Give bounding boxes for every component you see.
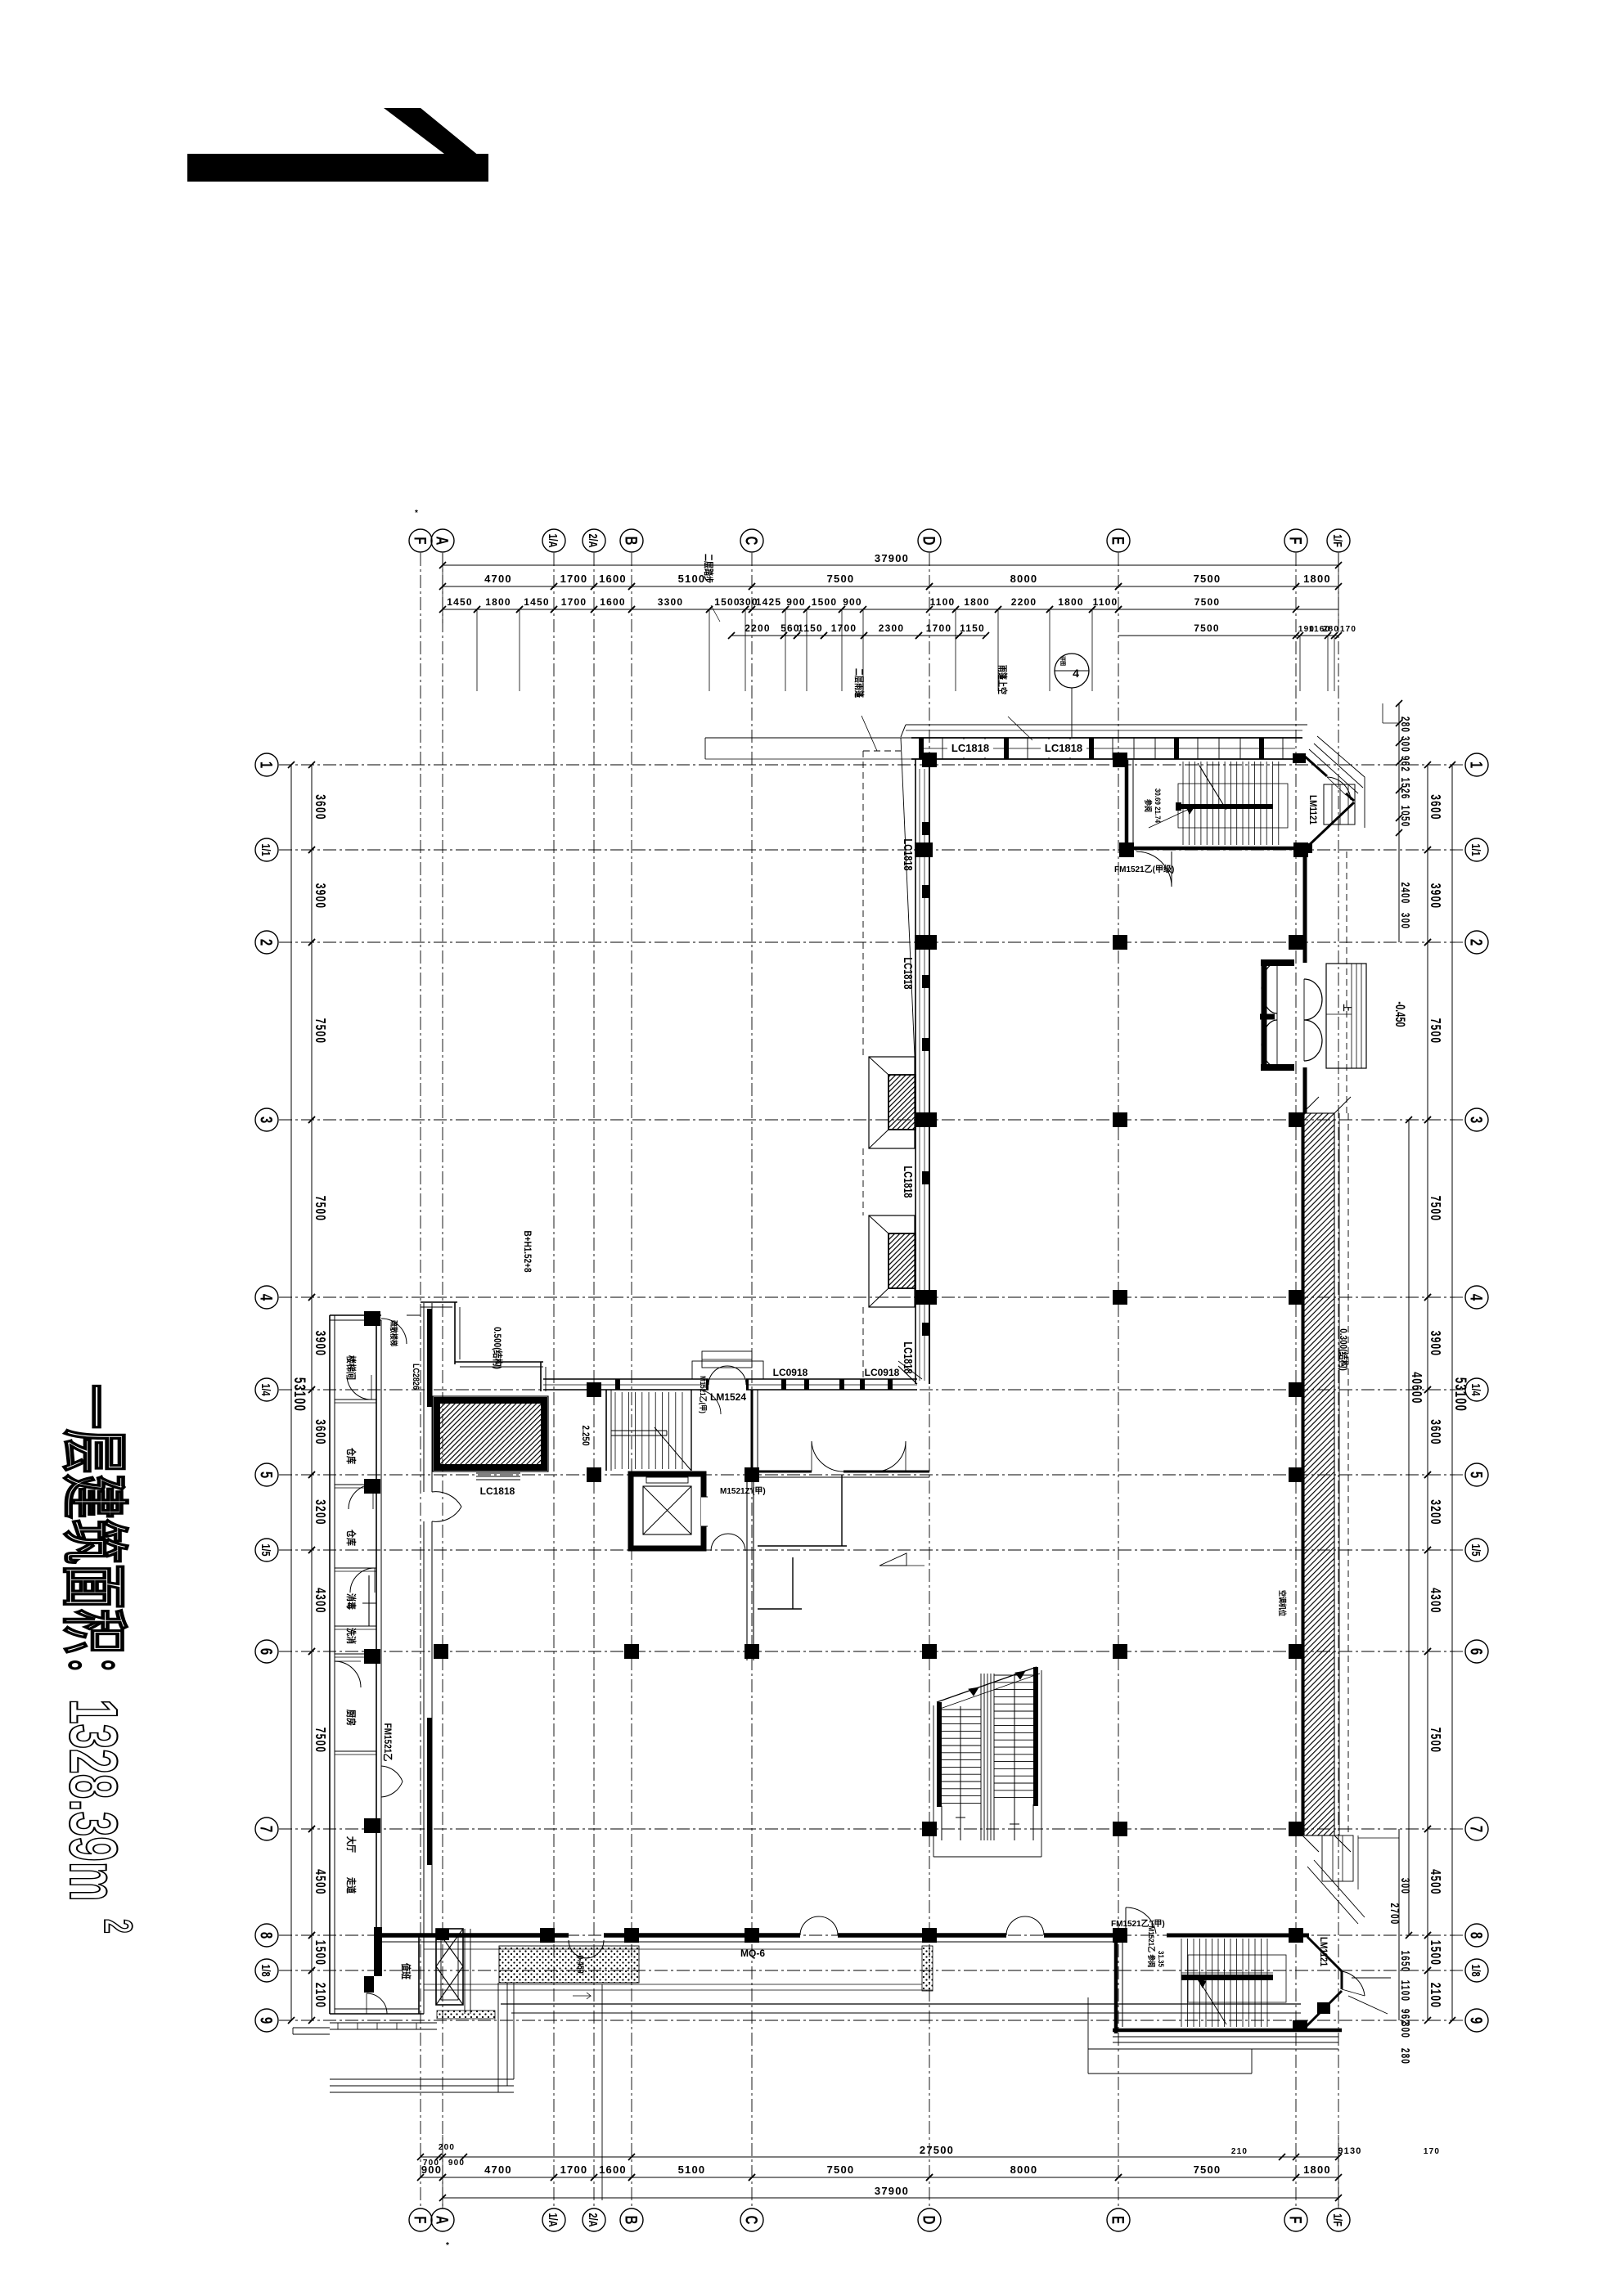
svg-text:1/1: 1/1 bbox=[1469, 843, 1483, 856]
svg-text:3300: 3300 bbox=[658, 596, 684, 608]
svg-text:走道: 走道 bbox=[345, 1876, 358, 1894]
svg-text:1/F: 1/F bbox=[1331, 2213, 1345, 2226]
svg-text:1500: 1500 bbox=[1427, 1940, 1443, 1966]
svg-text:5100: 5100 bbox=[678, 573, 706, 585]
svg-text:LM1524: LM1524 bbox=[710, 1391, 746, 1403]
svg-text:1/1: 1/1 bbox=[259, 843, 273, 856]
svg-text:7500: 7500 bbox=[1427, 1196, 1443, 1221]
svg-text:30.69 21.74: 30.69 21.74 bbox=[1154, 789, 1163, 823]
svg-text:6: 6 bbox=[1467, 1648, 1487, 1655]
svg-text:LC1818: LC1818 bbox=[902, 957, 915, 989]
svg-text:1/4: 1/4 bbox=[259, 1383, 273, 1396]
svg-text:M1521乙 参阅: M1521乙 参阅 bbox=[1147, 1926, 1157, 1968]
svg-text:LM1121: LM1121 bbox=[1318, 1937, 1329, 1966]
svg-text:M1521乙(甲): M1521乙(甲) bbox=[699, 1376, 708, 1413]
svg-text:7500: 7500 bbox=[1194, 596, 1221, 608]
svg-text:3900: 3900 bbox=[312, 1331, 328, 1356]
svg-text:3900: 3900 bbox=[1427, 1331, 1443, 1356]
svg-text:3200: 3200 bbox=[1427, 1499, 1443, 1525]
svg-text:1500: 1500 bbox=[812, 596, 838, 608]
svg-text:M1521Z'(甲): M1521Z'(甲) bbox=[720, 1486, 766, 1496]
svg-text:1/5: 1/5 bbox=[259, 1543, 273, 1556]
svg-text:C: C bbox=[742, 2216, 762, 2225]
svg-text:1500: 1500 bbox=[714, 596, 740, 608]
svg-text:*: * bbox=[415, 509, 418, 518]
svg-text:4300: 4300 bbox=[1427, 1588, 1443, 1613]
svg-text:3200: 3200 bbox=[312, 1499, 328, 1525]
svg-text:-0.450: -0.450 bbox=[575, 1952, 585, 1974]
svg-text:LM1121: LM1121 bbox=[1307, 795, 1318, 824]
svg-text:27500: 27500 bbox=[920, 2144, 954, 2156]
svg-text:31.35: 31.35 bbox=[1157, 1951, 1166, 1967]
svg-text:210: 210 bbox=[1231, 2147, 1248, 2156]
svg-text:7500: 7500 bbox=[1194, 622, 1220, 634]
svg-text:F: F bbox=[411, 537, 430, 544]
svg-text:8: 8 bbox=[257, 1932, 277, 1939]
svg-text:300: 300 bbox=[1398, 2022, 1413, 2038]
svg-text:1700: 1700 bbox=[561, 596, 587, 608]
svg-text:LC0918: LC0918 bbox=[773, 1367, 808, 1378]
svg-text:7500: 7500 bbox=[312, 1728, 328, 1753]
svg-text:2100: 2100 bbox=[312, 1983, 328, 2008]
svg-text:1450: 1450 bbox=[447, 596, 473, 608]
svg-text:2700: 2700 bbox=[1388, 1903, 1402, 1925]
svg-text:MQ-6: MQ-6 bbox=[740, 1948, 765, 1959]
svg-text:7500: 7500 bbox=[312, 1196, 328, 1221]
svg-text:7: 7 bbox=[1467, 1826, 1487, 1832]
svg-text:6: 6 bbox=[257, 1648, 277, 1655]
svg-text:空调机位: 空调机位 bbox=[1278, 1590, 1288, 1616]
svg-text:B: B bbox=[622, 537, 641, 546]
svg-text:2: 2 bbox=[1467, 939, 1487, 946]
svg-text:1700: 1700 bbox=[926, 622, 952, 634]
svg-text:B: B bbox=[622, 2216, 641, 2225]
svg-text:1700: 1700 bbox=[560, 573, 588, 585]
svg-text:7500: 7500 bbox=[1427, 1018, 1443, 1044]
svg-text:3600: 3600 bbox=[312, 1419, 328, 1445]
svg-text:FM1521乙'(甲): FM1521乙'(甲) bbox=[1111, 1919, 1165, 1929]
svg-text:值班: 值班 bbox=[400, 1963, 412, 1979]
svg-text:300: 300 bbox=[1398, 913, 1413, 929]
svg-text:5: 5 bbox=[1467, 1472, 1487, 1478]
svg-text:仓库: 仓库 bbox=[345, 1447, 358, 1464]
svg-text:962: 962 bbox=[1398, 756, 1413, 772]
svg-text:7500: 7500 bbox=[1427, 1728, 1443, 1753]
svg-text:0.300(结构): 0.300(结构) bbox=[1338, 1328, 1350, 1371]
svg-text:900: 900 bbox=[843, 596, 862, 608]
svg-text:LC2826: LC2826 bbox=[411, 1364, 421, 1390]
svg-text:7500: 7500 bbox=[827, 573, 855, 585]
svg-text:8000: 8000 bbox=[1010, 573, 1038, 585]
svg-text:40600: 40600 bbox=[1408, 1372, 1424, 1404]
svg-text:D: D bbox=[920, 537, 939, 546]
svg-text:FM1521乙(甲级): FM1521乙(甲级) bbox=[1114, 864, 1174, 874]
svg-text:4: 4 bbox=[1073, 667, 1079, 680]
svg-text:1/8: 1/8 bbox=[259, 1964, 273, 1976]
svg-text:F: F bbox=[1286, 2216, 1306, 2223]
svg-text:4: 4 bbox=[1467, 1294, 1487, 1301]
svg-text:2: 2 bbox=[257, 939, 277, 946]
svg-text:1/A: 1/A bbox=[547, 533, 560, 547]
svg-text:厨房: 厨房 bbox=[345, 1710, 358, 1726]
svg-text:2300: 2300 bbox=[879, 622, 905, 634]
svg-text:9: 9 bbox=[257, 2017, 277, 2024]
svg-text:楼梯间: 楼梯间 bbox=[345, 1355, 358, 1380]
svg-text:1: 1 bbox=[1467, 762, 1487, 768]
svg-text:300: 300 bbox=[1398, 736, 1413, 753]
svg-text:900: 900 bbox=[421, 2163, 442, 2176]
svg-text:参阅: 参阅 bbox=[1144, 799, 1154, 812]
svg-text:F: F bbox=[1286, 537, 1306, 544]
svg-text:F: F bbox=[411, 2216, 430, 2223]
svg-text:1150: 1150 bbox=[960, 622, 985, 634]
svg-text:170: 170 bbox=[1340, 625, 1356, 634]
svg-text:4300: 4300 bbox=[312, 1588, 328, 1613]
svg-text:280: 280 bbox=[1398, 2048, 1413, 2065]
svg-text:7500: 7500 bbox=[827, 2163, 855, 2176]
svg-text:大厅: 大厅 bbox=[345, 1836, 358, 1853]
svg-text:1650: 1650 bbox=[1398, 1950, 1413, 1972]
svg-text:9: 9 bbox=[1467, 2017, 1487, 2024]
svg-text:7500: 7500 bbox=[1194, 2163, 1221, 2176]
svg-text:1/4: 1/4 bbox=[1469, 1383, 1483, 1396]
svg-text:D: D bbox=[920, 2216, 939, 2225]
svg-text:1100: 1100 bbox=[930, 596, 956, 608]
svg-text:2100: 2100 bbox=[1427, 1983, 1443, 2008]
svg-text:疏散楼梯: 疏散楼梯 bbox=[389, 1320, 399, 1346]
svg-text:E: E bbox=[1109, 537, 1128, 545]
svg-text:1100: 1100 bbox=[1093, 596, 1118, 608]
svg-text:1/5: 1/5 bbox=[1469, 1543, 1483, 1556]
svg-text:5: 5 bbox=[257, 1472, 277, 1478]
svg-text:B+H1.52+8: B+H1.52+8 bbox=[522, 1230, 533, 1272]
svg-text:280: 280 bbox=[1398, 717, 1413, 733]
svg-text:FM1521乙: FM1521乙 bbox=[382, 1723, 394, 1762]
svg-text:1600: 1600 bbox=[600, 596, 626, 608]
svg-text:3: 3 bbox=[1467, 1117, 1487, 1123]
svg-text:1600: 1600 bbox=[599, 2163, 627, 2176]
svg-text:8000: 8000 bbox=[1010, 2163, 1038, 2176]
svg-text:1/A: 1/A bbox=[547, 2213, 560, 2226]
svg-text:1526: 1526 bbox=[1398, 777, 1413, 799]
svg-text:2/A: 2/A bbox=[587, 533, 601, 547]
svg-text:1050: 1050 bbox=[1398, 805, 1413, 827]
svg-text:1800: 1800 bbox=[1303, 2163, 1331, 2176]
svg-text:37900: 37900 bbox=[875, 552, 909, 564]
svg-text:LC1818: LC1818 bbox=[902, 1341, 915, 1373]
svg-text:A: A bbox=[433, 537, 452, 546]
svg-text:2: 2 bbox=[96, 1919, 140, 1934]
svg-text:1500: 1500 bbox=[312, 1940, 328, 1966]
svg-text:7500: 7500 bbox=[312, 1018, 328, 1044]
svg-text:2200: 2200 bbox=[1011, 596, 1037, 608]
svg-text:1425: 1425 bbox=[756, 596, 782, 608]
svg-text:7: 7 bbox=[257, 1826, 277, 1832]
svg-text:1800: 1800 bbox=[485, 596, 511, 608]
svg-text:一层建筑面积：1328.39m: 一层建筑面积：1328.39m bbox=[56, 1384, 131, 1902]
svg-text:53100: 53100 bbox=[1451, 1377, 1469, 1412]
svg-text:2/A: 2/A bbox=[587, 2213, 601, 2226]
svg-text:8: 8 bbox=[1467, 1932, 1487, 1939]
svg-text:7500: 7500 bbox=[1194, 573, 1221, 585]
svg-text:3900: 3900 bbox=[1427, 883, 1443, 909]
svg-text:37900: 37900 bbox=[875, 2185, 909, 2197]
svg-text:1700: 1700 bbox=[560, 2163, 588, 2176]
svg-text:2400: 2400 bbox=[1398, 882, 1413, 904]
svg-text:1700: 1700 bbox=[831, 622, 857, 634]
svg-text:3: 3 bbox=[257, 1117, 277, 1123]
svg-text:1600: 1600 bbox=[599, 573, 627, 585]
svg-text:LC1818: LC1818 bbox=[480, 1485, 515, 1497]
svg-text:3900: 3900 bbox=[312, 883, 328, 909]
svg-text:A: A bbox=[433, 2216, 452, 2225]
svg-text:LC1818: LC1818 bbox=[902, 1166, 915, 1197]
svg-text:LC0918: LC0918 bbox=[865, 1367, 900, 1378]
svg-text:4500: 4500 bbox=[312, 1869, 328, 1894]
svg-text:C: C bbox=[742, 537, 762, 546]
svg-text:LC1818: LC1818 bbox=[951, 742, 989, 754]
svg-text:2.250: 2.250 bbox=[580, 1426, 591, 1446]
svg-text:4500: 4500 bbox=[1427, 1869, 1443, 1894]
svg-text:5100: 5100 bbox=[678, 2163, 706, 2176]
svg-text:3600: 3600 bbox=[1427, 1419, 1443, 1445]
svg-text:E: E bbox=[1109, 2216, 1128, 2224]
svg-text:0.500(结构): 0.500(结构) bbox=[492, 1327, 504, 1369]
svg-text:-0.450: -0.450 bbox=[1392, 1001, 1408, 1027]
svg-text:洗消: 洗消 bbox=[345, 1628, 358, 1644]
svg-text:1/F: 1/F bbox=[1331, 534, 1345, 547]
svg-text:消毒: 消毒 bbox=[345, 1593, 358, 1610]
svg-text:1100: 1100 bbox=[1398, 1980, 1413, 2002]
svg-text:300: 300 bbox=[1398, 1878, 1413, 1894]
svg-text:900: 900 bbox=[786, 596, 806, 608]
svg-text:3600: 3600 bbox=[1427, 794, 1443, 820]
svg-text:1: 1 bbox=[257, 762, 277, 768]
svg-text:9130: 9130 bbox=[1338, 2146, 1361, 2156]
svg-text:1450: 1450 bbox=[524, 596, 550, 608]
svg-text:仓库: 仓库 bbox=[345, 1529, 358, 1546]
svg-text:1150: 1150 bbox=[798, 622, 823, 634]
svg-text:900: 900 bbox=[448, 2159, 465, 2168]
svg-text:1/8: 1/8 bbox=[1469, 1964, 1483, 1976]
svg-text:LC1818: LC1818 bbox=[1045, 742, 1082, 754]
svg-text:3600: 3600 bbox=[312, 794, 328, 820]
svg-text:53100: 53100 bbox=[290, 1377, 308, 1412]
svg-text:4700: 4700 bbox=[484, 2163, 512, 2176]
svg-text:*: * bbox=[446, 2241, 449, 2250]
svg-text:1800: 1800 bbox=[964, 596, 990, 608]
svg-text:4: 4 bbox=[257, 1294, 277, 1301]
svg-text:2200: 2200 bbox=[745, 622, 771, 634]
svg-text:1800: 1800 bbox=[1058, 596, 1084, 608]
svg-text:1800: 1800 bbox=[1303, 573, 1331, 585]
svg-text:200: 200 bbox=[439, 2143, 455, 2152]
svg-text:LC1818: LC1818 bbox=[902, 838, 915, 870]
svg-text:4700: 4700 bbox=[484, 573, 512, 585]
svg-text:170: 170 bbox=[1424, 2147, 1440, 2156]
